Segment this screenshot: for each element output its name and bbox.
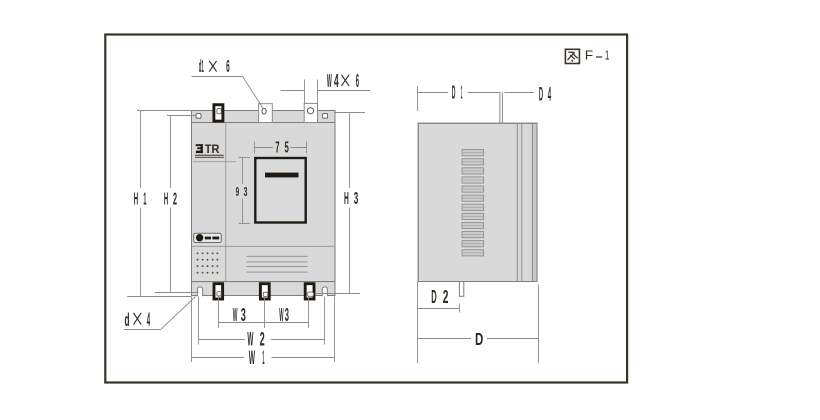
svg-text:7: 7	[275, 140, 279, 157]
svg-text:4: 4	[147, 309, 150, 331]
svg-text:6: 6	[356, 71, 359, 91]
svg-text:W: W	[279, 304, 283, 325]
svg-text:4: 4	[334, 71, 339, 91]
svg-text:D: D	[475, 329, 483, 349]
svg-text:3: 3	[285, 304, 289, 325]
svg-text:H: H	[164, 188, 168, 208]
svg-text:1: 1	[461, 82, 463, 103]
svg-text:d1: d1	[199, 56, 204, 76]
svg-text:W: W	[233, 304, 238, 325]
svg-text:D: D	[431, 286, 436, 307]
svg-text:W: W	[249, 347, 256, 369]
svg-text:d: d	[125, 309, 130, 330]
svg-text:1: 1	[262, 347, 264, 369]
svg-text:W: W	[327, 71, 332, 91]
svg-text:4: 4	[548, 84, 552, 105]
svg-text:6: 6	[226, 56, 230, 76]
svg-text:3: 3	[354, 188, 359, 208]
svg-text:H: H	[134, 188, 138, 208]
svg-text:1: 1	[143, 188, 146, 208]
svg-text:3: 3	[241, 304, 246, 325]
svg-text:D: D	[452, 82, 456, 103]
svg-text:D: D	[539, 84, 543, 105]
svg-text:TR: TR	[205, 142, 220, 156]
svg-text:5: 5	[285, 140, 290, 157]
svg-text:2: 2	[443, 286, 449, 307]
svg-text:F: F	[585, 48, 593, 63]
svg-text:H: H	[344, 188, 349, 208]
svg-text:3: 3	[244, 184, 248, 199]
svg-text:2: 2	[173, 188, 177, 208]
svg-text:1: 1	[605, 48, 610, 63]
svg-text:9: 9	[236, 184, 240, 199]
